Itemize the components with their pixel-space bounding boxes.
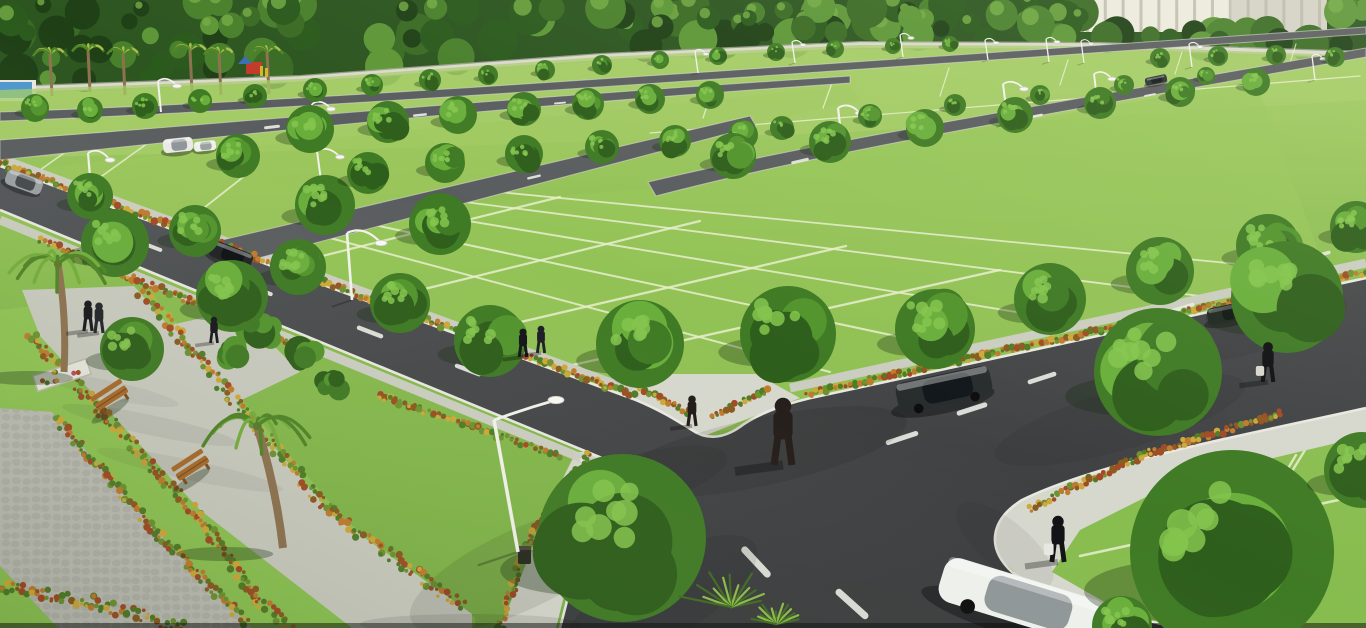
- render-image: Aerial 3D render of plotted land develop…: [0, 0, 1366, 628]
- land-development-render: Aerial 3D render of plotted land develop…: [0, 0, 1366, 628]
- sunlight-overlay: [0, 0, 1366, 628]
